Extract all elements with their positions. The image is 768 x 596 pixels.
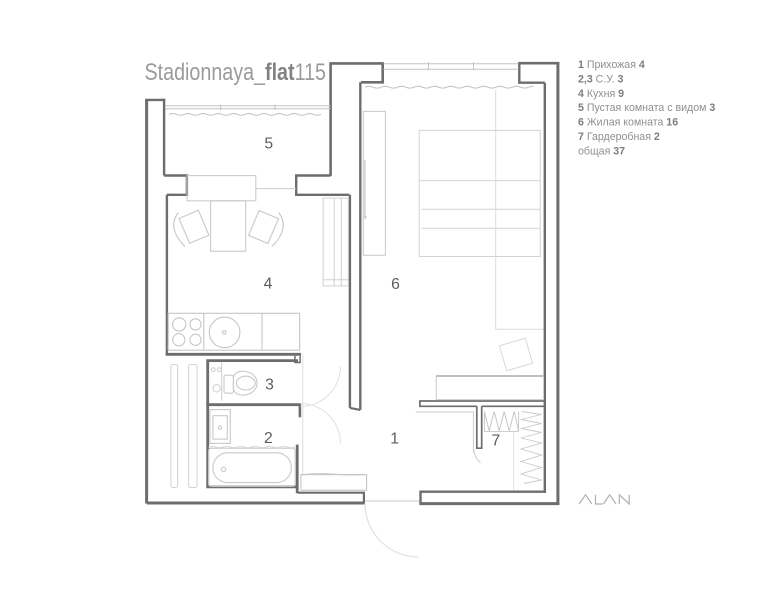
- svg-text:7 Гардеробная 2: 7 Гардеробная 2: [578, 131, 660, 143]
- svg-text:3: 3: [265, 376, 274, 393]
- svg-text:6: 6: [391, 276, 400, 293]
- svg-text:общая 37: общая 37: [578, 145, 625, 157]
- svg-text:5: 5: [264, 135, 273, 152]
- svg-text:1: 1: [390, 431, 399, 448]
- svg-text:2: 2: [264, 430, 273, 447]
- svg-text:4 Кухня 9: 4 Кухня 9: [578, 88, 624, 100]
- svg-text:Stadionnaya_flat115: Stadionnaya_flat115: [145, 59, 326, 86]
- svg-text:5 Пустая комната с видом 3: 5 Пустая комната с видом 3: [578, 102, 715, 114]
- svg-text:2,3 С.У. 3: 2,3 С.У. 3: [578, 73, 623, 85]
- svg-text:4: 4: [264, 276, 273, 293]
- svg-text:7: 7: [492, 432, 501, 449]
- svg-text:1 Прихожая 4: 1 Прихожая 4: [578, 59, 645, 71]
- svg-text:6 Жилая комната 16: 6 Жилая комната 16: [578, 117, 678, 129]
